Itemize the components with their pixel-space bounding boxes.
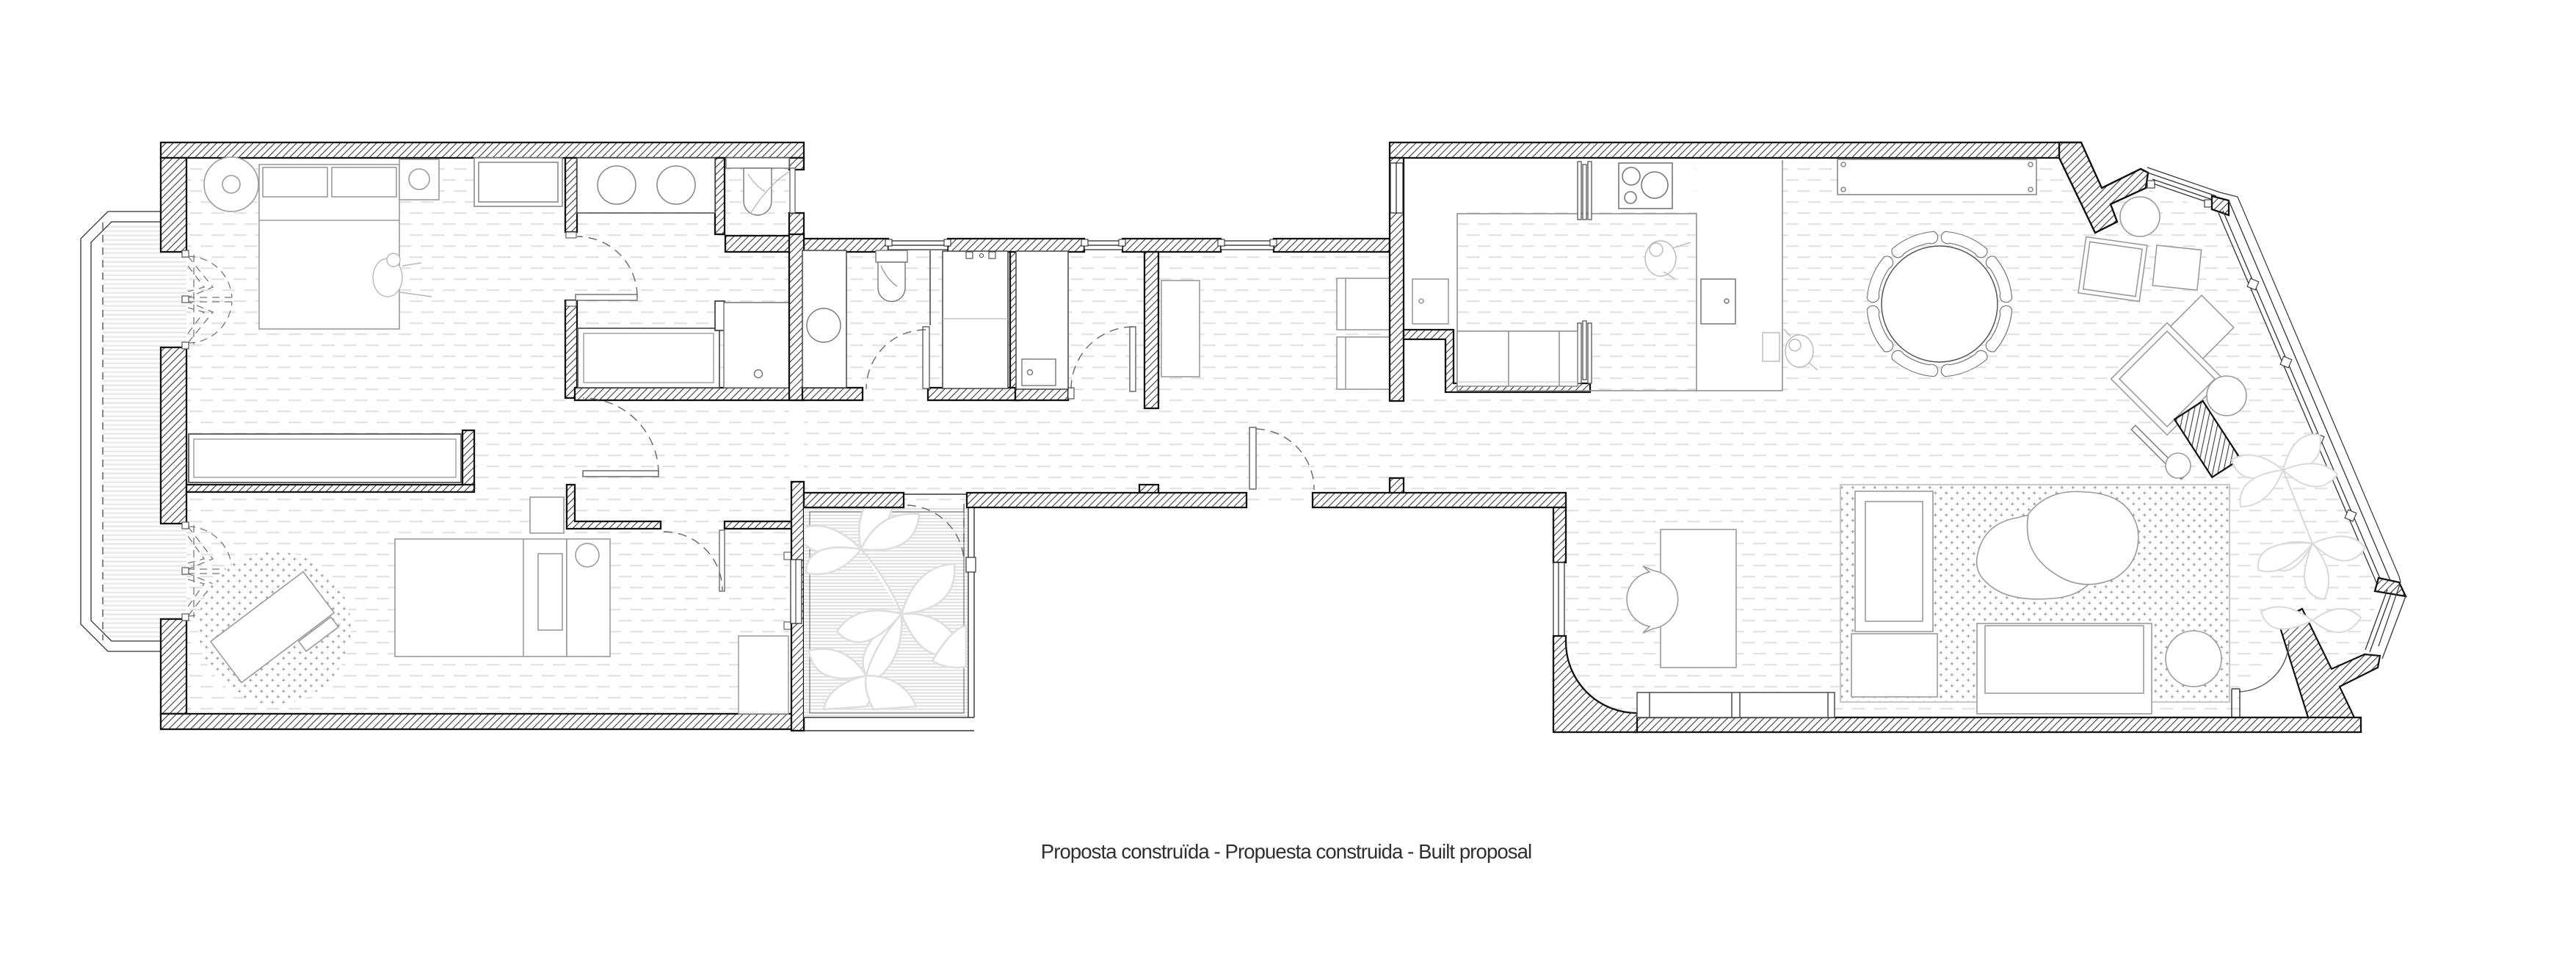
svg-text:Proposta construïda - Propuest: Proposta construïda - Propuesta construi… bbox=[1041, 840, 1531, 863]
